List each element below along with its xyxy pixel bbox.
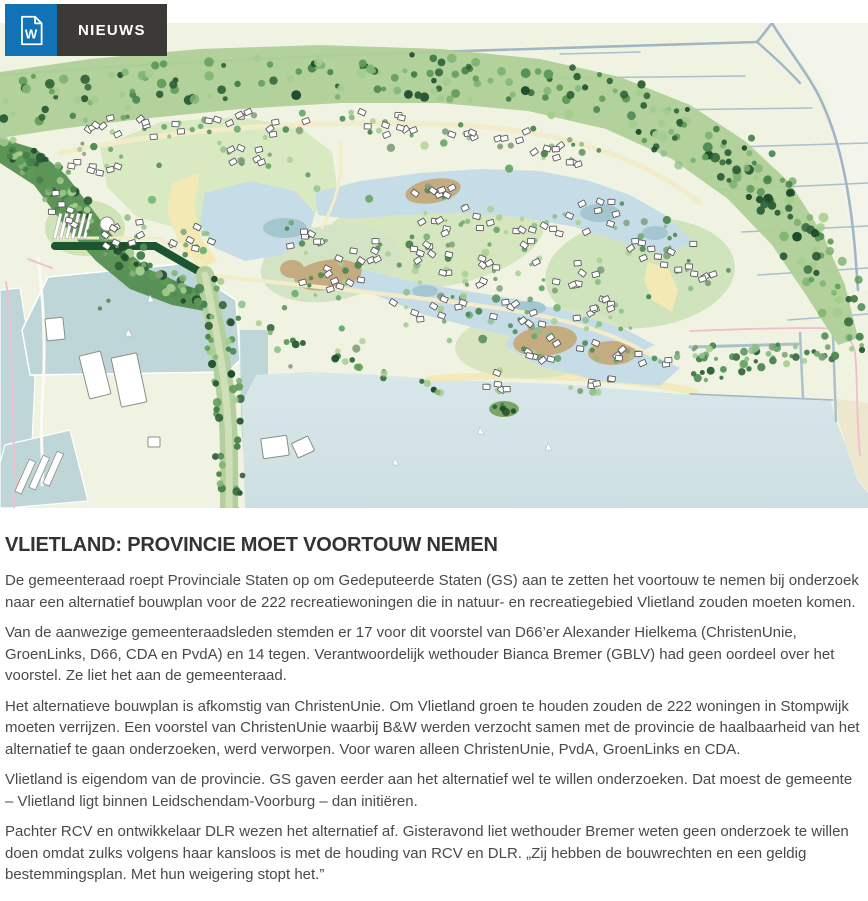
brand-logo[interactable]: W (5, 4, 57, 56)
article-paragraph-3: Het alternatieve bouwplan is afkomstig v… (5, 696, 863, 761)
masterplan-illustration (0, 23, 868, 508)
article-paragraph-5: Pachter RCV en ontwikkelaar DLR wezen he… (5, 821, 863, 886)
article-hero: W NIEUWS (0, 0, 868, 508)
article-paragraph-4: Vlietland is eigendom van de provincie. … (5, 769, 863, 812)
article-paragraph-2: Van de aanwezige gemeenteraadsleden stem… (5, 622, 863, 687)
article-paragraph-1: De gemeenteraad roept Provinciale Staten… (5, 570, 863, 613)
doc-icon-letter: W (24, 26, 37, 41)
brand-bar: W NIEUWS (5, 4, 167, 56)
article-title: VLIETLAND: PROVINCIE MOET VOORTOUW NEMEN (5, 534, 863, 557)
nav-item-nieuws[interactable]: NIEUWS (57, 4, 167, 56)
article-body: VLIETLAND: PROVINCIE MOET VOORTOUW NEMEN… (0, 508, 868, 901)
nav-label: NIEUWS (78, 22, 146, 39)
word-doc-icon: W (18, 15, 45, 46)
